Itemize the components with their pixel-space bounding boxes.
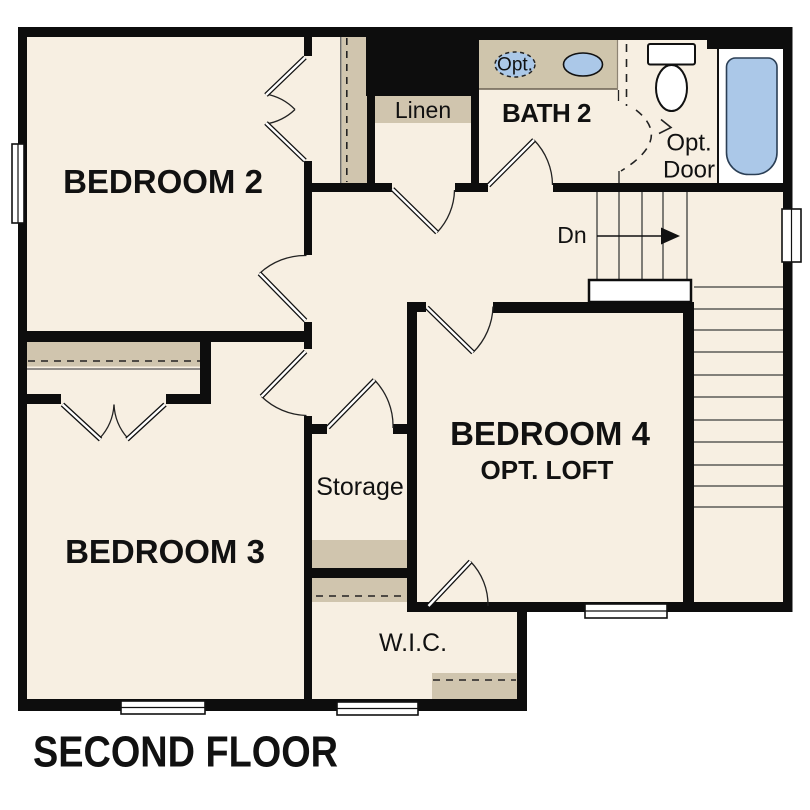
svg-text:BEDROOM 2: BEDROOM 2: [63, 163, 263, 200]
svg-text:Storage: Storage: [316, 473, 404, 501]
svg-text:Dn: Dn: [557, 222, 586, 248]
svg-text:BEDROOM 4: BEDROOM 4: [450, 415, 651, 452]
svg-text:Opt.: Opt.: [497, 55, 533, 76]
svg-text:OPT. LOFT: OPT. LOFT: [481, 455, 614, 485]
svg-text:Door: Door: [663, 157, 715, 184]
svg-text:SECOND FLOOR: SECOND FLOOR: [33, 729, 338, 777]
svg-text:BATH 2: BATH 2: [502, 98, 591, 128]
svg-text:BEDROOM 3: BEDROOM 3: [65, 533, 265, 570]
svg-text:Opt.: Opt.: [666, 130, 711, 157]
svg-text:W.I.C.: W.I.C.: [379, 629, 447, 657]
svg-text:Linen: Linen: [395, 97, 451, 123]
